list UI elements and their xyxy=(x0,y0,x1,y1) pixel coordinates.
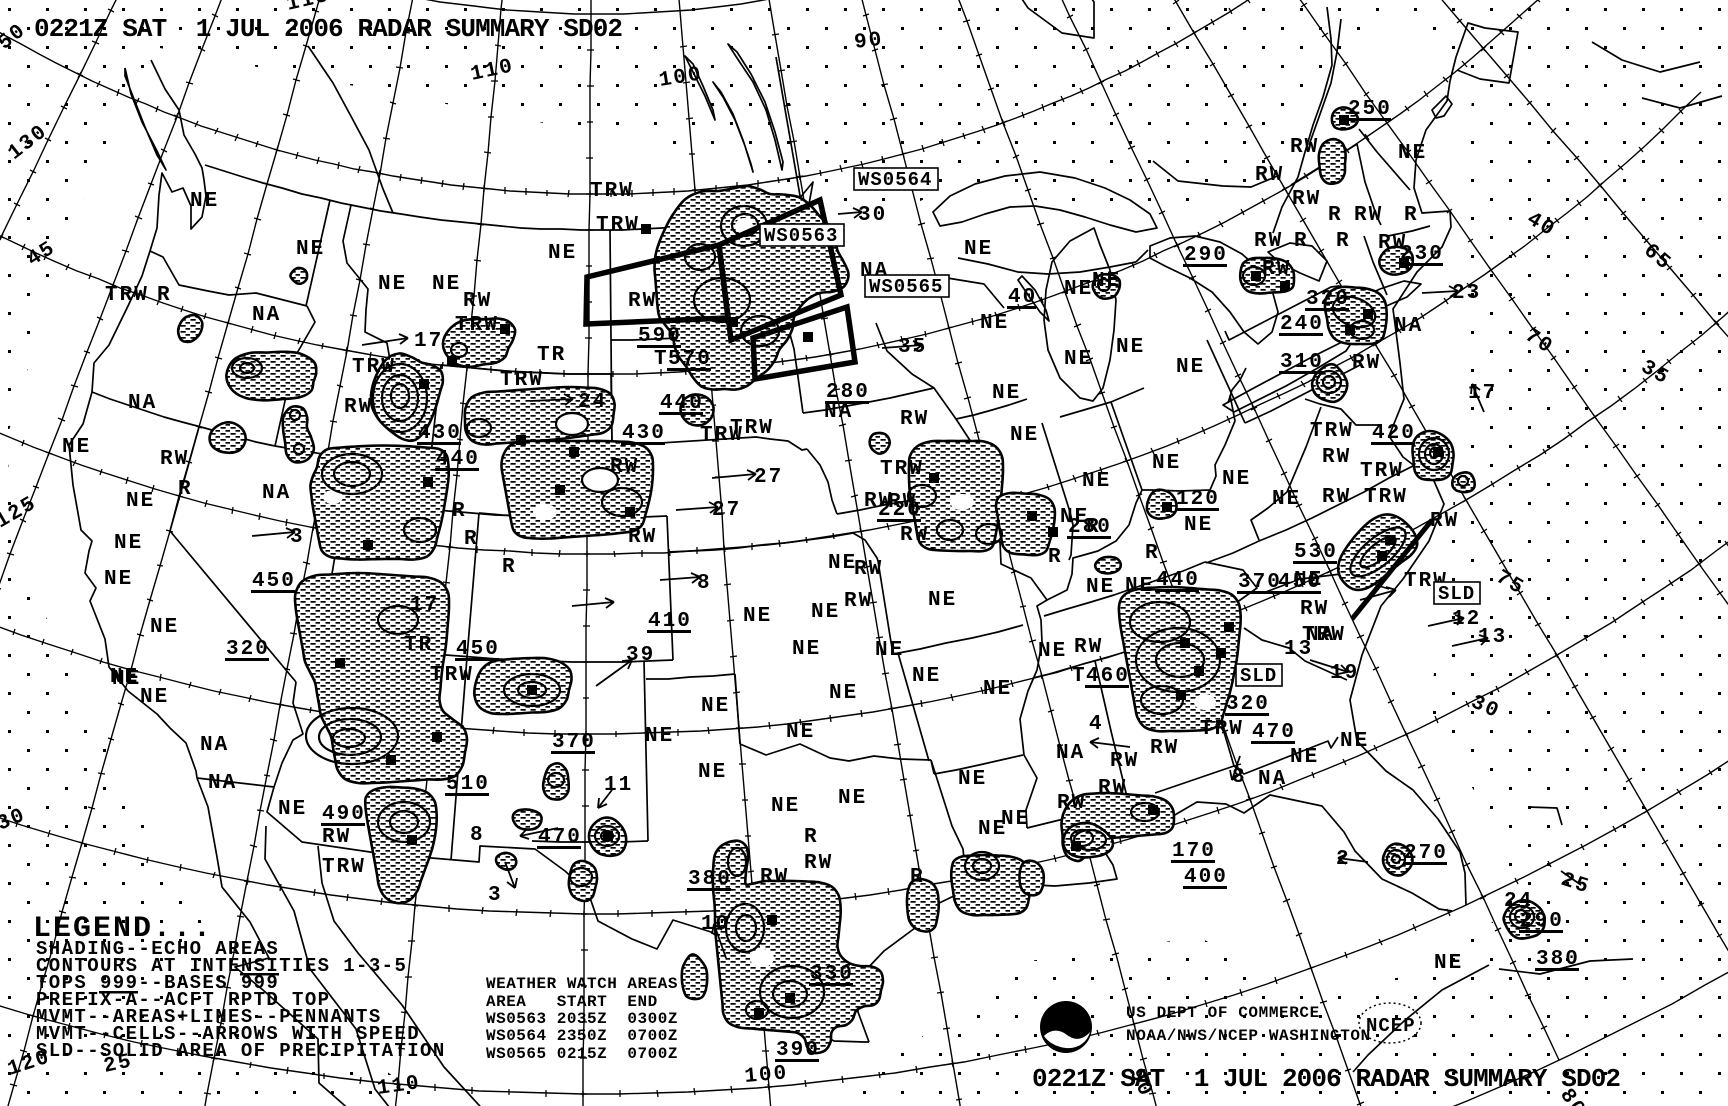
svg-text:420: 420 xyxy=(1372,422,1416,445)
svg-text:TRW: TRW xyxy=(1364,486,1408,509)
svg-text:NOAA/NWS/NCEP WASHINGTON: NOAA/NWS/NCEP WASHINGTON xyxy=(1126,1027,1371,1045)
svg-text:440: 440 xyxy=(1156,569,1200,592)
svg-text:RW: RW xyxy=(1098,777,1127,800)
svg-text:NE: NE xyxy=(928,589,957,612)
svg-text:RW: RW xyxy=(1322,446,1351,469)
svg-text:RW: RW xyxy=(628,526,657,549)
svg-text:TR: TR xyxy=(537,344,566,367)
svg-text:RW: RW xyxy=(1255,164,1284,187)
svg-text:RW: RW xyxy=(1354,204,1383,227)
svg-text:NE: NE xyxy=(110,666,139,689)
svg-text:280: 280 xyxy=(1068,516,1112,539)
svg-text:12: 12 xyxy=(1452,608,1481,631)
svg-text:NE: NE xyxy=(1398,142,1427,165)
svg-text:NE: NE xyxy=(743,605,772,628)
svg-text:NCEP: NCEP xyxy=(1366,1015,1416,1037)
svg-text:NE: NE xyxy=(771,795,800,818)
svg-text:NE: NE xyxy=(829,682,858,705)
svg-text:320: 320 xyxy=(1306,288,1350,311)
svg-text:450: 450 xyxy=(456,638,500,661)
svg-text:NE: NE xyxy=(432,273,461,296)
svg-text:NE: NE xyxy=(875,639,904,662)
svg-text:590: 590 xyxy=(638,325,682,348)
svg-text:NE: NE xyxy=(1125,575,1154,598)
svg-text:290: 290 xyxy=(1520,910,1564,933)
svg-text:27: 27 xyxy=(712,499,741,522)
svg-text:440: 440 xyxy=(436,448,480,471)
svg-text:RW: RW xyxy=(160,448,189,471)
svg-text:390: 390 xyxy=(776,1039,820,1062)
svg-text:T: T xyxy=(654,348,669,371)
svg-text:US DEPT OF COMMERCE: US DEPT OF COMMERCE xyxy=(1126,1004,1320,1022)
svg-text:TRW: TRW xyxy=(590,180,634,203)
svg-text:NE: NE xyxy=(1152,452,1181,475)
svg-text:310: 310 xyxy=(1280,351,1324,374)
svg-text:35: 35 xyxy=(898,336,927,359)
svg-text:RW: RW xyxy=(1262,258,1291,281)
svg-text:8: 8 xyxy=(470,824,485,847)
svg-text:23: 23 xyxy=(1452,282,1481,305)
svg-text:NE: NE xyxy=(645,725,674,748)
svg-text:NE: NE xyxy=(1116,336,1145,359)
svg-text:SLD: SLD xyxy=(1438,583,1475,605)
svg-text:NE: NE xyxy=(1082,470,1111,493)
svg-text:NE: NE xyxy=(1064,348,1093,371)
svg-text:TRW: TRW xyxy=(500,369,544,392)
svg-text:RW: RW xyxy=(1352,352,1381,375)
svg-text:230: 230 xyxy=(1400,243,1444,266)
svg-text:27: 27 xyxy=(754,466,783,489)
svg-text:TR: TR xyxy=(404,634,433,657)
svg-text:R: R xyxy=(1294,230,1309,253)
svg-text:510: 510 xyxy=(446,773,490,796)
svg-text:NE: NE xyxy=(1434,952,1463,975)
svg-text:330: 330 xyxy=(810,963,854,986)
svg-text:3: 3 xyxy=(488,884,503,907)
svg-text:SLD: SLD xyxy=(1240,665,1277,687)
svg-text:RW: RW xyxy=(1110,750,1139,773)
svg-text:450: 450 xyxy=(1278,571,1322,594)
svg-text:NE: NE xyxy=(1222,468,1251,491)
svg-text:SLD--SOLID AREA OF PRECIPITATI: SLD--SOLID AREA OF PRECIPITATION xyxy=(36,1040,446,1062)
svg-text:280: 280 xyxy=(826,381,870,404)
svg-text:TRW: TRW xyxy=(880,458,924,481)
svg-text:NA: NA xyxy=(1258,768,1287,791)
svg-text:NE: NE xyxy=(1184,514,1213,537)
svg-text:0221Z SAT 1 JUL 2006 RADAR SU: 0221Z SAT 1 JUL 2006 RADAR SUMMARY SD02 xyxy=(1032,1064,1620,1094)
svg-text:NE: NE xyxy=(838,787,867,810)
svg-text:RW: RW xyxy=(900,524,929,547)
svg-text:R: R xyxy=(1328,204,1343,227)
svg-text:NE: NE xyxy=(912,665,941,688)
svg-text:RW: RW xyxy=(1057,792,1086,815)
svg-text:2: 2 xyxy=(1336,848,1351,871)
svg-text:8: 8 xyxy=(1232,766,1247,789)
svg-text:TRW: TRW xyxy=(352,356,396,379)
svg-text:NE: NE xyxy=(978,818,1007,841)
svg-text:13: 13 xyxy=(1284,638,1313,661)
svg-text:RW: RW xyxy=(344,396,373,419)
svg-text:WS0565 0215Z 0700Z: WS0565 0215Z 0700Z xyxy=(486,1045,678,1063)
svg-text:R: R xyxy=(1336,230,1351,253)
svg-text:NE: NE xyxy=(701,695,730,718)
svg-text:410: 410 xyxy=(648,610,692,633)
svg-text:NE: NE xyxy=(1092,270,1121,293)
svg-text:19: 19 xyxy=(1330,662,1359,685)
svg-text:TRW: TRW xyxy=(105,284,149,307)
svg-text:NE: NE xyxy=(828,552,857,575)
svg-text:17: 17 xyxy=(410,594,439,617)
svg-text:290: 290 xyxy=(1184,244,1228,267)
svg-text:RW: RW xyxy=(1290,136,1319,159)
svg-text:NA: NA xyxy=(824,401,853,424)
svg-text:NA: NA xyxy=(208,772,237,795)
svg-text:NOAA: NOAA xyxy=(1053,1015,1079,1027)
svg-text:WS0564: WS0564 xyxy=(858,169,932,191)
svg-text:NA: NA xyxy=(200,734,229,757)
svg-text:NE: NE xyxy=(1086,576,1115,599)
svg-text:490: 490 xyxy=(322,803,366,826)
svg-text:NE: NE xyxy=(378,273,407,296)
svg-text:NA: NA xyxy=(252,304,281,327)
svg-text:NE: NE xyxy=(140,686,169,709)
svg-text:30: 30 xyxy=(858,204,887,227)
svg-text:TRW: TRW xyxy=(1310,420,1354,443)
svg-text:RW: RW xyxy=(760,866,789,889)
svg-text:WS0565: WS0565 xyxy=(869,276,943,298)
svg-text:NE: NE xyxy=(992,382,1021,405)
svg-text:17: 17 xyxy=(1468,382,1497,405)
svg-text:R: R xyxy=(1404,204,1419,227)
svg-text:R: R xyxy=(910,866,925,889)
svg-text:NE: NE xyxy=(958,768,987,791)
svg-text:R: R xyxy=(1048,546,1063,569)
svg-text:NA: NA xyxy=(128,392,157,415)
svg-text:40: 40 xyxy=(1008,286,1037,309)
svg-text:NE: NE xyxy=(1176,356,1205,379)
svg-text:NA: NA xyxy=(1394,315,1423,338)
svg-text:460: 460 xyxy=(1086,665,1130,688)
svg-text:NE: NE xyxy=(1064,278,1093,301)
svg-text:NE: NE xyxy=(296,238,325,261)
svg-text:470: 470 xyxy=(538,826,582,849)
svg-text:NE: NE xyxy=(1340,730,1369,753)
svg-text:NE: NE xyxy=(980,312,1009,335)
svg-text:NE: NE xyxy=(786,721,815,744)
svg-text:R: R xyxy=(502,556,517,579)
svg-text:RW: RW xyxy=(844,590,873,613)
svg-text:220: 220 xyxy=(878,499,922,522)
svg-text:WS0564 2350Z 0700Z: WS0564 2350Z 0700Z xyxy=(486,1027,678,1045)
svg-text:RW: RW xyxy=(804,852,833,875)
svg-text:R: R xyxy=(452,500,467,523)
svg-text:11: 11 xyxy=(604,774,633,797)
svg-text:NE: NE xyxy=(114,532,143,555)
svg-text:NE: NE xyxy=(1038,640,1067,663)
svg-text:RW: RW xyxy=(1292,188,1321,211)
svg-text:RW: RW xyxy=(1254,230,1283,253)
svg-text:TRW: TRW xyxy=(430,664,474,687)
svg-text:240: 240 xyxy=(1280,313,1324,336)
svg-text:NE: NE xyxy=(62,436,91,459)
svg-text:320: 320 xyxy=(226,638,270,661)
svg-text:NA: NA xyxy=(1056,742,1085,765)
svg-text:NE: NE xyxy=(190,190,219,213)
svg-text:TRW: TRW xyxy=(1200,718,1244,741)
svg-text:400: 400 xyxy=(1184,866,1228,889)
svg-text:39: 39 xyxy=(626,644,655,667)
svg-text:170: 170 xyxy=(1172,840,1216,863)
svg-text:0221Z SAT 1 JUL 2006 RADAR SU: 0221Z SAT 1 JUL 2006 RADAR SUMMARY SD02 xyxy=(34,14,622,44)
svg-text:10: 10 xyxy=(701,913,730,936)
svg-text:NE: NE xyxy=(126,490,155,513)
svg-text:RW: RW xyxy=(610,456,639,479)
svg-text:TRW: TRW xyxy=(730,417,774,440)
svg-text:RW: RW xyxy=(1300,598,1329,621)
svg-text:AREA START END: AREA START END xyxy=(486,993,658,1011)
svg-text:WS0563 2035Z 0300Z: WS0563 2035Z 0300Z xyxy=(486,1010,678,1028)
svg-text:RW: RW xyxy=(1322,486,1351,509)
svg-text:13: 13 xyxy=(1478,626,1507,649)
svg-text:430: 430 xyxy=(622,422,666,445)
svg-text:NE: NE xyxy=(811,601,840,624)
svg-text:WS0563: WS0563 xyxy=(764,225,838,247)
svg-text:NA: NA xyxy=(262,482,291,505)
svg-text:90: 90 xyxy=(853,29,885,55)
svg-text:NE: NE xyxy=(1010,424,1039,447)
svg-text:NE: NE xyxy=(1272,488,1301,511)
svg-text:4: 4 xyxy=(1089,713,1104,736)
svg-text:R: R xyxy=(1145,542,1160,565)
svg-text:8: 8 xyxy=(697,572,712,595)
svg-text:430: 430 xyxy=(418,422,462,445)
svg-text:470: 470 xyxy=(1252,721,1296,744)
svg-text:24: 24 xyxy=(578,391,607,414)
svg-text:RW: RW xyxy=(463,290,492,313)
svg-text:380: 380 xyxy=(1536,948,1580,971)
svg-text:RW: RW xyxy=(1150,737,1179,760)
svg-text:TRW: TRW xyxy=(596,214,640,237)
svg-text:TRW: TRW xyxy=(322,856,366,879)
svg-text:RW: RW xyxy=(854,558,883,581)
svg-text:RW: RW xyxy=(1430,510,1459,533)
svg-text:NE: NE xyxy=(792,638,821,661)
svg-text:120: 120 xyxy=(1176,488,1220,511)
svg-text:NE: NE xyxy=(548,242,577,265)
svg-text:NE: NE xyxy=(698,761,727,784)
svg-text:RW: RW xyxy=(1074,636,1103,659)
svg-text:R: R xyxy=(464,528,479,551)
svg-text:380: 380 xyxy=(688,868,732,891)
svg-text:24: 24 xyxy=(1504,890,1533,913)
svg-text:RW: RW xyxy=(628,290,657,313)
svg-text:R: R xyxy=(178,478,193,501)
svg-text:NE: NE xyxy=(104,568,133,591)
svg-text:NE: NE xyxy=(964,238,993,261)
svg-text:320: 320 xyxy=(1226,693,1270,716)
svg-text:RW: RW xyxy=(900,408,929,431)
svg-text:450: 450 xyxy=(252,570,296,593)
svg-text:NE: NE xyxy=(983,678,1012,701)
svg-text:3: 3 xyxy=(290,526,305,549)
svg-text:NE: NE xyxy=(150,616,179,639)
svg-text:370: 370 xyxy=(1238,571,1282,594)
svg-text:17: 17 xyxy=(414,330,443,353)
svg-text:NE: NE xyxy=(278,798,307,821)
svg-text:270: 270 xyxy=(1404,842,1448,865)
svg-text:370: 370 xyxy=(552,731,596,754)
svg-text:TRW: TRW xyxy=(455,314,499,337)
svg-text:TRW: TRW xyxy=(1360,460,1404,483)
svg-text:R: R xyxy=(804,826,819,849)
svg-text:WEATHER WATCH AREAS: WEATHER WATCH AREAS xyxy=(486,975,678,993)
svg-text:NE: NE xyxy=(1290,746,1319,769)
svg-text:T: T xyxy=(1072,665,1087,688)
svg-text:440: 440 xyxy=(660,392,704,415)
svg-text:100: 100 xyxy=(744,1062,790,1089)
svg-text:R: R xyxy=(157,284,172,307)
svg-text:570: 570 xyxy=(668,348,712,371)
svg-text:RW: RW xyxy=(322,826,351,849)
svg-text:250: 250 xyxy=(1348,98,1392,121)
svg-text:530: 530 xyxy=(1294,541,1338,564)
